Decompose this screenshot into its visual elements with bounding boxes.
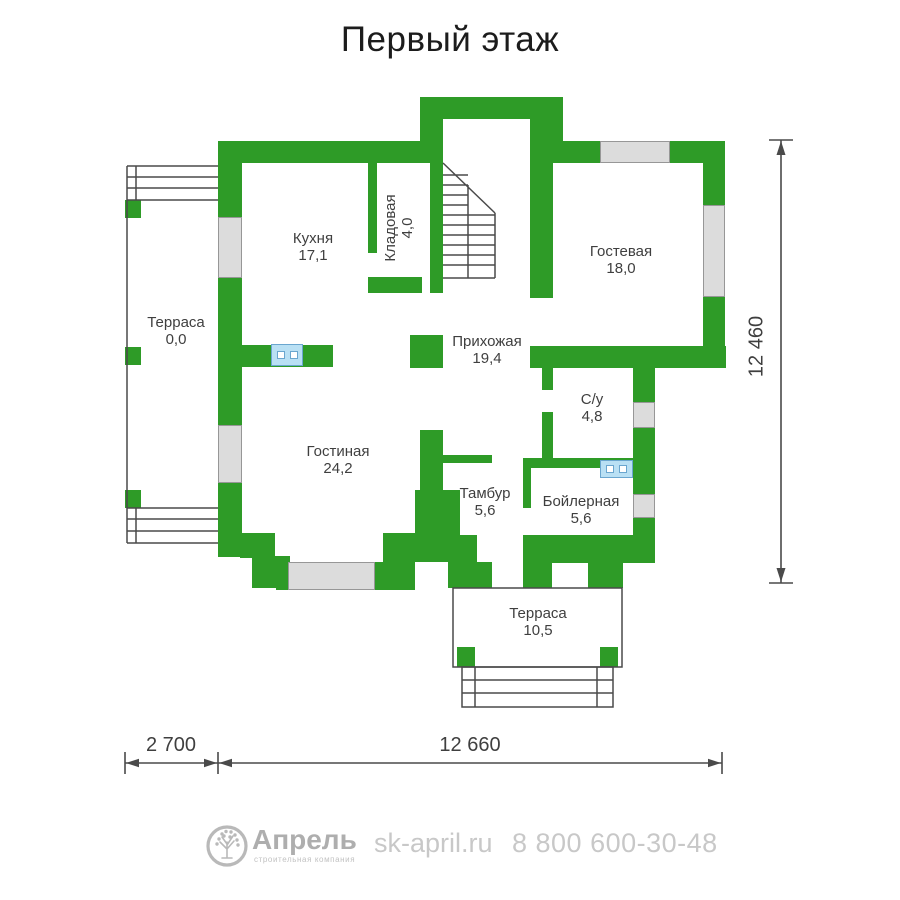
room-label-living: Гостиная24,2 [268,443,408,477]
wall [523,535,642,563]
footer: Апрель строительная компания sk-april.ru… [0,818,900,878]
vent-symbol [271,344,303,366]
floor-plan-page: Первый этаж [0,0,900,900]
vent-cell [606,465,614,473]
room-label-hallway: Прихожая19,4 [417,333,557,367]
wall [703,141,725,205]
window-opening [703,205,725,297]
vent-cell [277,351,285,359]
room-label-terrace-left: Терраса0,0 [106,314,246,348]
room-label-bathroom: С/у4,8 [522,391,662,425]
room-label-guest: Гостевая18,0 [551,243,691,277]
vent-cell [290,351,298,359]
wall [240,533,275,558]
wall [633,428,655,494]
wall [530,346,726,368]
window-opening [600,141,670,163]
wall [420,455,492,463]
window-opening [218,425,242,483]
wall [125,490,141,508]
wall [420,430,443,535]
wall [375,562,415,590]
room-label-terrace-bottom: Терраса10,5 [468,605,608,639]
wall [523,562,552,588]
terrace-bottom-stairs [462,667,613,707]
wall [218,483,242,557]
vent-symbol [600,460,633,478]
wall [383,533,417,562]
wall [457,647,475,667]
vent-cell [619,465,627,473]
brand-name: Апрель [252,826,357,854]
dimension-bottom-main-label: 12 660 [410,734,530,757]
room-label-kitchen: Кухня17,1 [243,230,383,264]
plan-lines [0,0,900,900]
wall [125,347,141,365]
company-logo-icon [204,823,250,869]
wall [415,535,477,562]
wall [430,163,443,293]
wall [592,562,623,588]
wall [530,119,553,298]
page-title: Первый этаж [0,20,900,60]
wall [542,368,553,390]
staircase [443,163,495,278]
wall [448,562,492,588]
dimension-right-label: 12 460 [746,287,769,407]
wall [125,200,141,218]
room-label-boiler: Бойлерная5,6 [511,493,651,527]
wall [600,647,618,667]
phone-number: 8 800 600-30-48 [512,828,718,859]
room-label-pantry: Кладовая4,0 [382,158,416,298]
wall [218,141,242,217]
brand-subtitle: строительная компания [254,855,355,864]
dimension-bottom-left-label: 2 700 [111,734,231,757]
window-opening [218,217,242,278]
window-opening [288,562,375,590]
website-url: sk-april.ru [374,828,493,859]
wall [561,141,602,163]
